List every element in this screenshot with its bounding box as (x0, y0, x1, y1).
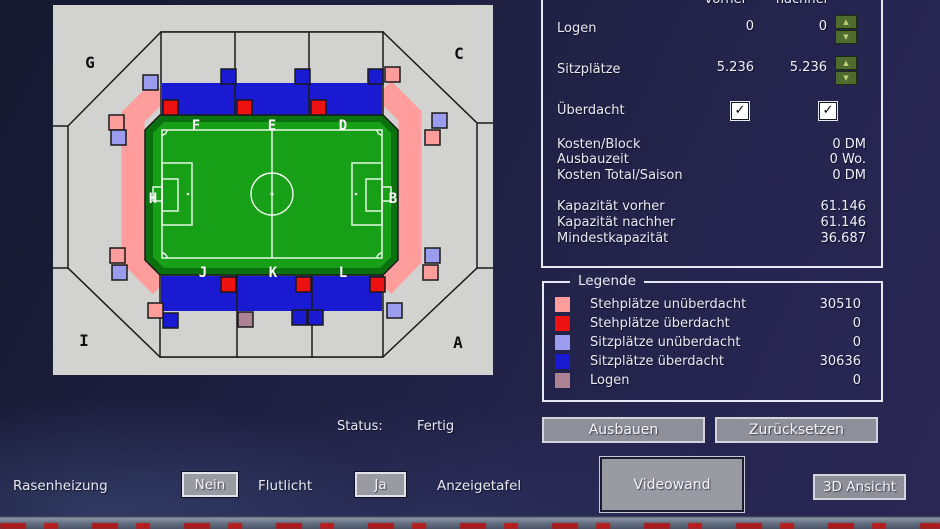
stat-value-mindestkapazitaet: 36.687 (821, 231, 867, 246)
corner-label-a: A (453, 333, 463, 352)
legend-swatch-seated-uncovered (555, 335, 570, 350)
flutlicht-toggle-button[interactable]: Ja (355, 472, 406, 497)
legend-panel: Legende Stehplätze unüberdacht 30510 Ste… (542, 281, 883, 402)
block-label-j: J (199, 265, 207, 281)
logen-spinner[interactable]: ▲ ▼ (835, 15, 857, 45)
logen-vorher-value: 0 (684, 19, 754, 34)
legend-value: 0 (853, 373, 861, 388)
corner-label-g: G (85, 53, 95, 72)
ueberdacht-vorher-checkbox[interactable]: ✓ (731, 102, 749, 120)
rasenheizung-label: Rasenheizung (13, 478, 108, 494)
stat-label-kosten-total: Kosten Total/Saison (557, 168, 683, 183)
stat-label-kapazitaet-nachher: Kapazität nachher (557, 215, 675, 230)
stadium-editor-screen: G C I A F E D H B J K L vorher nachher L… (0, 0, 940, 529)
row-label-logen: Logen (557, 21, 596, 36)
stat-value-kosten-block: 0 DM (832, 137, 866, 152)
legend-label: Stehplätze unüberdacht (590, 297, 746, 312)
capacity-panel: vorher nachher Logen 0 0 ▲ ▼ Sitzplätze … (541, 0, 883, 268)
stadium-map[interactable]: G C I A F E D H B J K L (53, 5, 493, 375)
corner-label-c: C (454, 44, 464, 63)
logen-spinner-up[interactable]: ▲ (835, 15, 857, 29)
block-label-b: B (389, 191, 397, 207)
bottom-taskbar-strip[interactable] (0, 516, 940, 529)
stat-label-ausbauzeit: Ausbauzeit (557, 152, 629, 167)
block-label-l: L (339, 265, 347, 281)
stat-value-ausbauzeit: 0 Wo. (830, 152, 866, 167)
taskbar-icons-cut (0, 523, 940, 529)
sitzplaetze-spinner[interactable]: ▲ ▼ (835, 56, 857, 86)
zuruecksetzen-button[interactable]: Zurücksetzen (715, 417, 878, 443)
legend-value: 0 (853, 335, 861, 350)
row-label-sitzplaetze: Sitzplätze (557, 62, 621, 77)
legend-label: Logen (590, 373, 629, 388)
logen-nachher-value: 0 (767, 19, 827, 34)
stat-label-mindestkapazitaet: Mindestkapazität (557, 231, 668, 246)
sitzplaetze-spinner-up[interactable]: ▲ (835, 56, 857, 70)
stat-value-kapazitaet-nachher: 61.146 (821, 215, 867, 230)
legend-label: Sitzplätze unüberdacht (590, 335, 740, 350)
flutlicht-label: Flutlicht (258, 478, 312, 494)
ueberdacht-nachher-checkbox[interactable]: ✓ (819, 102, 837, 120)
legend-value: 30636 (820, 354, 861, 369)
row-label-ueberdacht: Überdacht (557, 103, 625, 118)
block-label-k: K (269, 265, 278, 281)
3d-ansicht-button[interactable]: 3D Ansicht (813, 474, 906, 500)
stat-label-kapazitaet-vorher: Kapazität vorher (557, 199, 665, 214)
status-label: Status: (337, 419, 383, 434)
sitzplaetze-vorher-value: 5.236 (684, 60, 754, 75)
legend-value: 30510 (820, 297, 861, 312)
column-header-vorher: vorher (705, 0, 747, 7)
stat-value-kapazitaet-vorher: 61.146 (821, 199, 867, 214)
anzeigetafel-label: Anzeigetafel (437, 478, 521, 494)
status-value: Fertig (417, 419, 454, 434)
block-label-f: F (192, 118, 200, 134)
sitzplaetze-spinner-down[interactable]: ▼ (835, 71, 857, 85)
sitzplaetze-nachher-value: 5.236 (767, 60, 827, 75)
legend-swatch-standing-covered (555, 316, 570, 331)
logen-spinner-down[interactable]: ▼ (835, 30, 857, 44)
squares-logen[interactable] (238, 312, 253, 327)
videowand-button[interactable]: Videowand (600, 457, 744, 512)
block-label-h: H (149, 191, 157, 207)
legend-label: Sitzplätze überdacht (590, 354, 724, 369)
legend-swatch-seated-covered (555, 354, 570, 369)
stat-label-kosten-block: Kosten/Block (557, 137, 640, 152)
corner-label-i: I (79, 331, 89, 350)
legend-value: 0 (853, 316, 861, 331)
legend-title: Legende (570, 273, 644, 289)
legend-swatch-logen (555, 373, 570, 388)
legend-swatch-standing-uncovered (555, 297, 570, 312)
block-label-e: E (268, 118, 276, 134)
column-header-nachher: nachher (776, 0, 829, 7)
rasenheizung-toggle-button[interactable]: Nein (182, 472, 238, 497)
stat-value-kosten-total: 0 DM (832, 168, 866, 183)
ausbauen-button[interactable]: Ausbauen (542, 417, 705, 443)
legend-label: Stehplätze überdacht (590, 316, 730, 331)
block-label-d: D (339, 118, 347, 134)
